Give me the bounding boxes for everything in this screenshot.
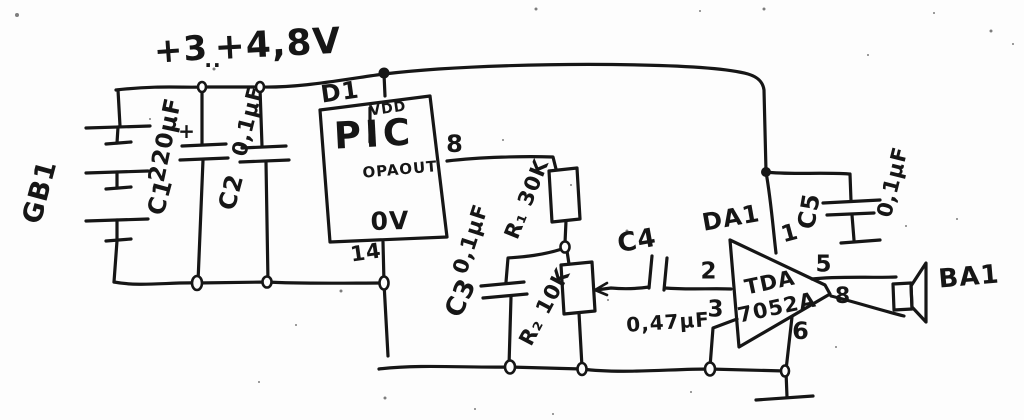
ic-name-label: PIC <box>333 113 415 154</box>
c5-ref-label: C5 <box>794 191 824 231</box>
c4-value-label: 0,47μF <box>626 309 711 335</box>
c4-ref-label: C4 <box>615 225 658 257</box>
resistor-r2-symbol <box>561 251 649 367</box>
junction-rings <box>192 82 789 377</box>
supply-voltage-min-label: +3 <box>153 31 209 69</box>
supply-voltage-max-label: +4,8V <box>214 24 343 67</box>
schematic-page: +3 .. +4,8V GB1 220μF + C1 0,1μF C2 D1 P… <box>0 0 1024 420</box>
c1-polarity-label: + <box>178 121 196 141</box>
amp-pin2-number: 2 <box>700 261 717 284</box>
ic-pin8-number: 8 <box>446 132 464 156</box>
ic-pin14-number: 14 <box>349 240 383 265</box>
ic-0v-pin-label: 0V <box>370 208 410 234</box>
battery-symbol <box>86 90 150 282</box>
speaker-ref-label: BA1 <box>937 261 1000 292</box>
amp-pin8-number: 8 <box>835 286 851 308</box>
amp-pin6-number: 6 <box>792 319 810 343</box>
ic-ref-label: D1 <box>319 77 361 106</box>
amp-pin3-number: 3 <box>707 299 724 322</box>
amp-pin5-number: 5 <box>815 254 832 277</box>
capacitor-c4-symbol <box>649 256 731 290</box>
top-rail-wire <box>116 64 766 171</box>
